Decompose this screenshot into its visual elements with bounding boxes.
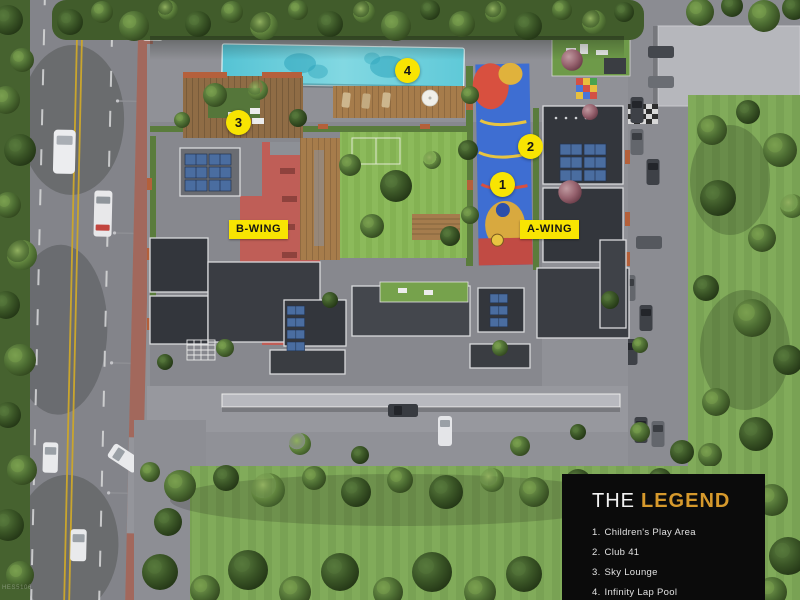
legend-item-label: Infinity Lap Pool <box>605 587 678 598</box>
render-watermark: HES5106 <box>2 585 32 591</box>
legend-item: 4.Infinity Lap Pool <box>592 587 765 598</box>
legend-item-number: 2. <box>592 547 601 558</box>
marker-1-children-play-area[interactable]: 1 <box>490 172 515 197</box>
legend-item-label: Sky Lounge <box>605 567 658 578</box>
legend-item-number: 3. <box>592 567 601 578</box>
legend-item-label: Children's Play Area <box>605 527 696 538</box>
legend-item-number: 4. <box>592 587 601 598</box>
legend-title-prefix: THE <box>592 490 635 512</box>
a-wing-label: A-WING <box>520 220 579 239</box>
legend-item: 3.Sky Lounge <box>592 567 765 578</box>
marker-4-infinity-lap-pool[interactable]: 4 <box>395 58 420 83</box>
legend-panel: THELEGEND 1.Children's Play Area 2.Club … <box>562 474 765 600</box>
play-mat <box>576 78 597 99</box>
legend-item: 2.Club 41 <box>592 547 765 558</box>
site-plan-screenshot: B-WING A-WING 1 2 3 4 THELEGEND 1.Childr… <box>0 0 800 600</box>
legend-title: THELEGEND <box>592 490 765 513</box>
legend-item-number: 1. <box>592 527 601 538</box>
legend-title-accent: LEGEND <box>641 490 730 512</box>
pool-deck <box>333 86 465 118</box>
legend-item-label: Club 41 <box>605 547 640 558</box>
legend-items: 1.Children's Play Area 2.Club 41 3.Sky L… <box>592 527 765 598</box>
marker-3-sky-lounge[interactable]: 3 <box>226 110 251 135</box>
marker-2-club-41[interactable]: 2 <box>518 134 543 159</box>
legend-item: 1.Children's Play Area <box>592 527 765 538</box>
b-wing-label: B-WING <box>229 220 288 239</box>
